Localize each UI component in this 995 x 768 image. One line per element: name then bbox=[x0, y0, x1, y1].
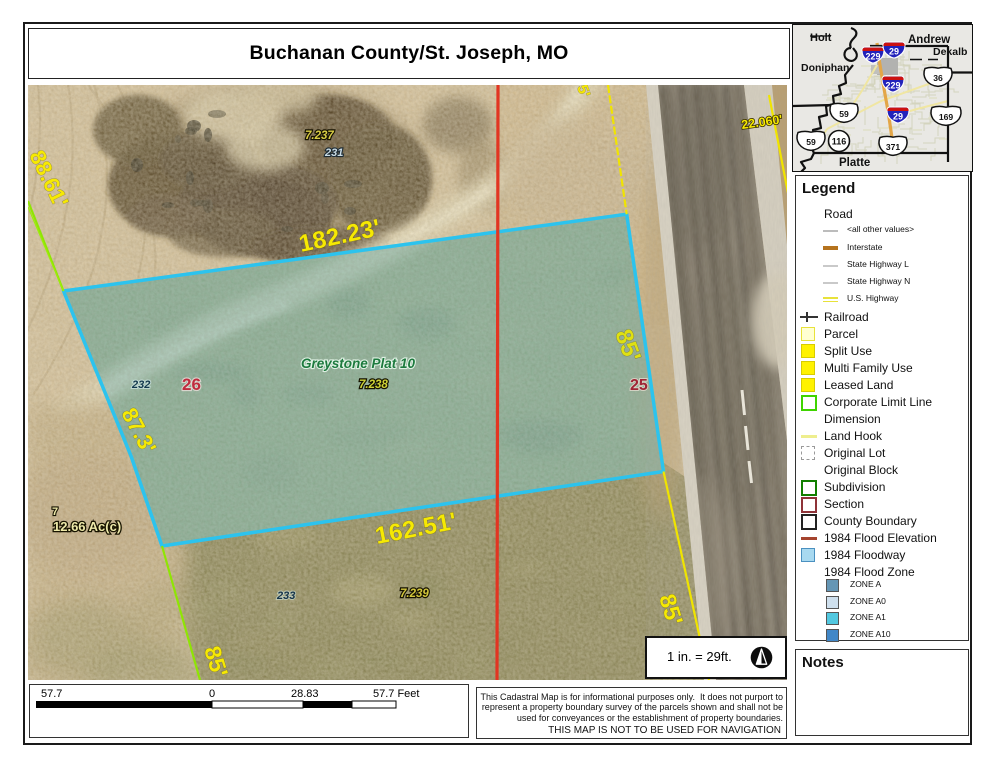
svg-text:116: 116 bbox=[832, 137, 847, 147]
svg-text:169: 169 bbox=[939, 112, 954, 122]
svg-text:Holt: Holt bbox=[810, 32, 832, 44]
svg-text:29: 29 bbox=[893, 112, 903, 122]
svg-text:229: 229 bbox=[865, 52, 880, 62]
svg-text:Doniphan: Doniphan bbox=[801, 62, 849, 74]
svg-text:Andrew: Andrew bbox=[908, 34, 950, 46]
svg-text:25: 25 bbox=[630, 377, 648, 394]
svg-text:7: 7 bbox=[52, 506, 58, 518]
svg-text:232: 232 bbox=[131, 379, 150, 391]
svg-text:Platte: Platte bbox=[839, 157, 870, 169]
svg-text:29: 29 bbox=[889, 47, 899, 57]
svg-text:231: 231 bbox=[324, 147, 343, 159]
svg-text:12.66 Ac(c): 12.66 Ac(c) bbox=[53, 519, 121, 534]
svg-text:371: 371 bbox=[886, 142, 901, 152]
svg-text:7.239: 7.239 bbox=[400, 588, 429, 600]
svg-text:Greystone Plat 10: Greystone Plat 10 bbox=[301, 356, 416, 371]
svg-text:36: 36 bbox=[933, 73, 943, 83]
svg-text:7.237: 7.237 bbox=[305, 130, 334, 142]
svg-text:229: 229 bbox=[885, 81, 900, 91]
svg-text:7.238: 7.238 bbox=[359, 379, 388, 391]
svg-text:Dekalb: Dekalb bbox=[933, 46, 967, 58]
svg-text:26: 26 bbox=[182, 375, 201, 394]
svg-text:233: 233 bbox=[276, 590, 295, 602]
svg-text:59: 59 bbox=[806, 137, 816, 147]
svg-text:59: 59 bbox=[839, 109, 849, 119]
